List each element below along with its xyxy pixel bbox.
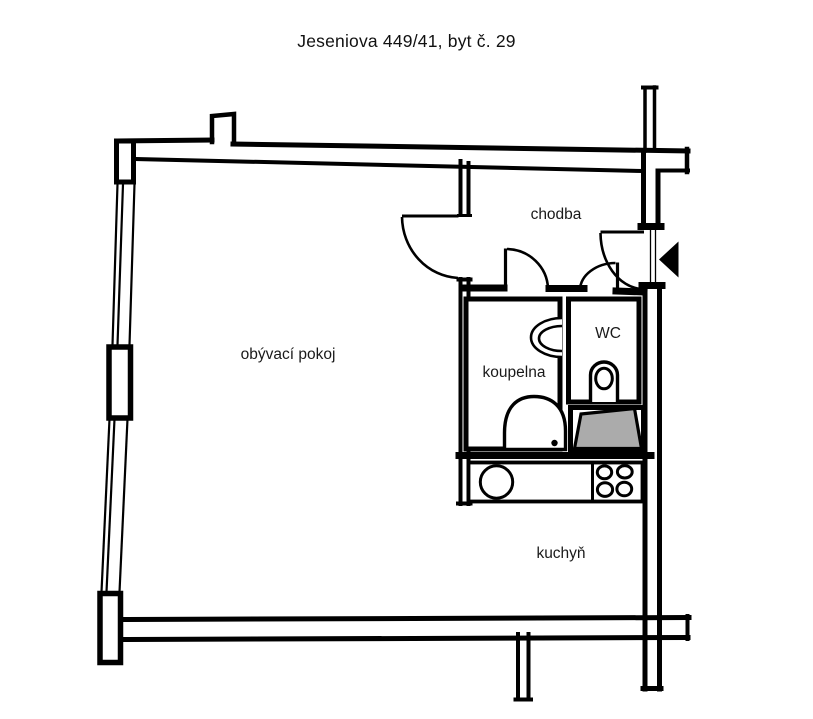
floor-plan-page: Jeseniova 449/41, byt č. 29: [0, 0, 813, 719]
kitchen-counter: [469, 463, 643, 502]
hallway-label: chodba: [531, 206, 582, 223]
top-wall-inner: [136, 159, 641, 171]
wall-pier-middle-left: [109, 347, 131, 418]
kitchen-sink: [480, 466, 512, 498]
entrance-arrow-icon: [659, 242, 679, 278]
floor-plan-drawing: obývací pokoj chodba WC koupelna kuchyň: [0, 0, 813, 719]
window-lower: [102, 419, 128, 592]
partition-upper: [461, 161, 469, 215]
bottom-wall-outer: [112, 638, 688, 640]
toilet: [591, 362, 618, 402]
shaded-closet: [575, 409, 642, 449]
left-wall: [100, 141, 135, 663]
bathtub: [505, 397, 566, 450]
doors: [402, 216, 644, 290]
bathtub-drain: [551, 440, 557, 446]
wc-label: WC: [595, 325, 621, 342]
kitchen-label: kuchyň: [536, 545, 585, 562]
wall-pier-bottom-left: [100, 594, 121, 663]
living-room-door: [402, 216, 459, 278]
bottom-wall-inner: [114, 618, 689, 620]
bathroom-door: [506, 249, 549, 289]
wall-pier-top-left: [117, 141, 134, 182]
bathroom-label: koupelna: [483, 364, 546, 381]
entrance-door: [601, 232, 645, 289]
living-room-label: obývací pokoj: [241, 346, 336, 363]
window-upper: [113, 184, 135, 345]
top-wall-notch: [212, 114, 234, 144]
entrance-threshold: [651, 229, 656, 284]
top-wall-outer-right: [233, 144, 688, 151]
